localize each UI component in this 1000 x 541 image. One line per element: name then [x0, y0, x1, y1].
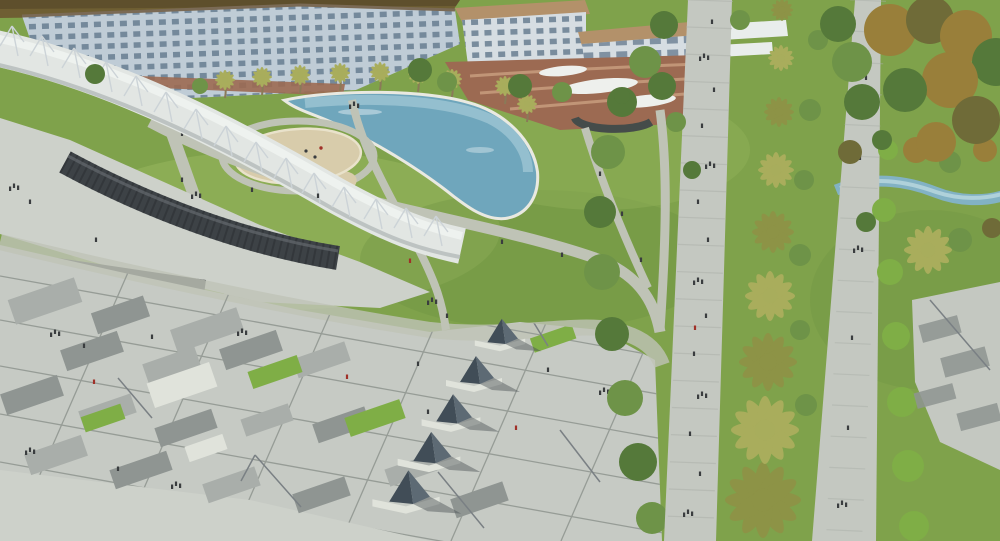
red-pedestrian: [694, 326, 696, 331]
aerial-park-scene: [0, 0, 1000, 541]
park-rendering-image: [0, 0, 1000, 541]
